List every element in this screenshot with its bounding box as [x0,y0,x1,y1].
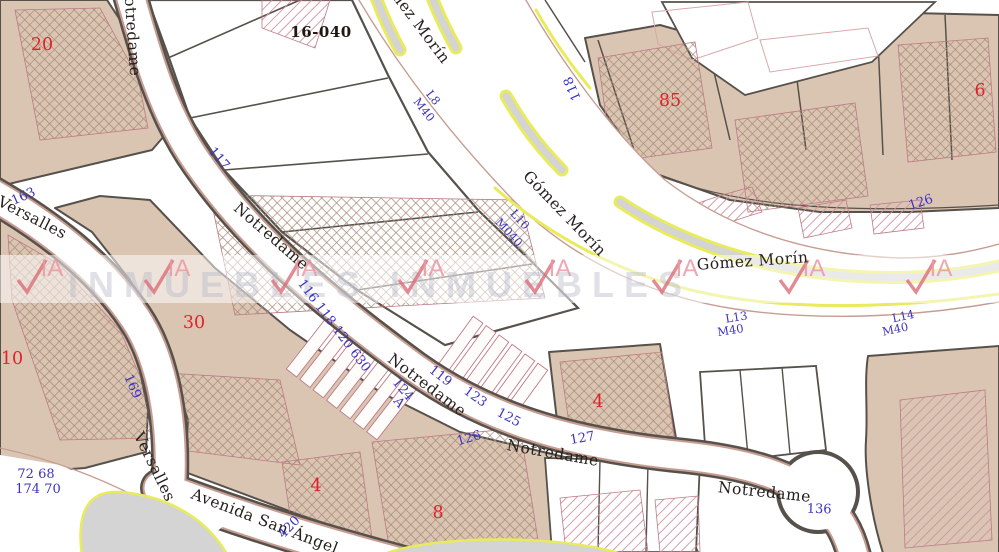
via-logo-text: IA [168,255,191,282]
block-code-label: 16-040 [290,23,351,41]
parcel-number-8: 8 [432,503,443,523]
map-canvas[interactable]: INMUEBLES INMUEBLES IA IA IA IA IA IA IA… [0,0,999,552]
via-logo-text: IA [41,255,64,282]
parcel-number-20: 20 [31,35,53,55]
parcel-number-6: 6 [974,81,985,101]
via-logo-text: IA [676,255,699,282]
parcel-number-4-center: 4 [592,392,603,412]
parcel-number-30: 30 [183,313,205,333]
watermark-band-text: INMUEBLES INMUEBLES [68,264,692,305]
via-logo-text: IA [549,255,572,282]
via-logo-text: IA [930,255,953,282]
via-logo-text: IA [422,255,445,282]
address-174-70: 174 70 [15,482,61,497]
parcel-number-85: 85 [659,91,681,111]
parcel-number-10: 10 [1,349,23,369]
address-72-68: 72 68 [17,467,54,482]
via-watermark: INMUEBLES INMUEBLES IA IA IA IA IA IA IA… [0,255,999,305]
address-136: 136 [806,502,831,518]
parcel-number-4-south: 4 [310,476,321,496]
cadastral-map[interactable]: INMUEBLES INMUEBLES IA IA IA IA IA IA IA… [0,0,999,552]
